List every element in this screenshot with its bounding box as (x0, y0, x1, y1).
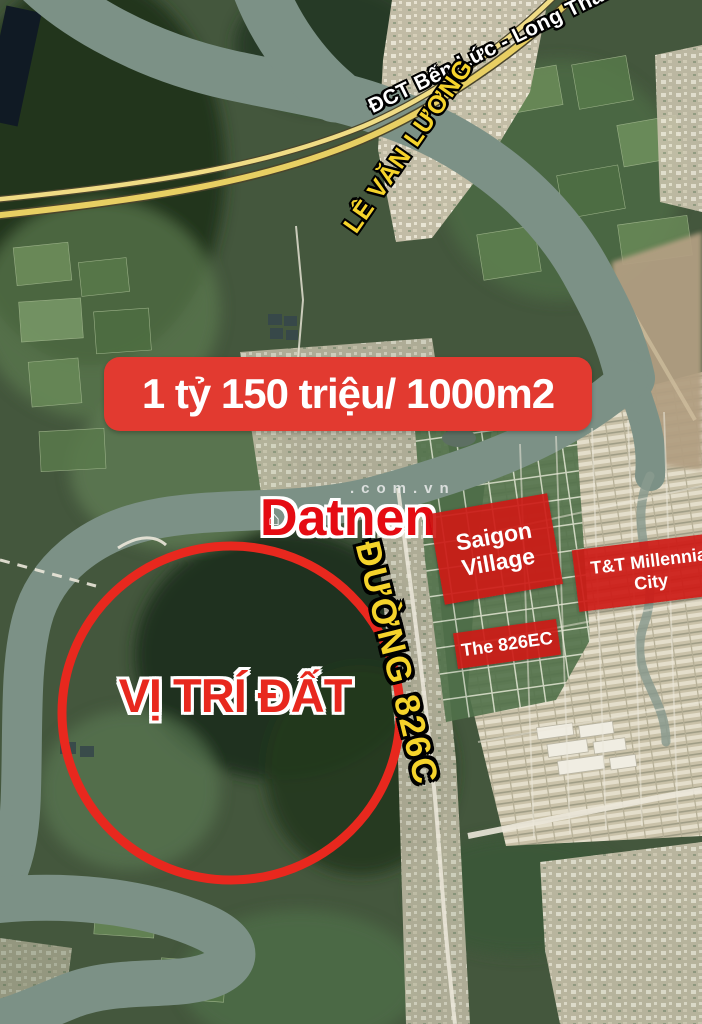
land-location-label: VỊ TRÍ ĐẤT (92, 668, 378, 723)
real-estate-map-ad: ĐCT Bến Lức - Long Thành LÊ VĂN LƯƠNG 1 … (0, 0, 702, 1024)
datnen-logo: Datnen ⌂ (260, 492, 436, 544)
house-icon: ⌂ (268, 509, 280, 529)
price-text: 1 tỷ 150 triệu/ 1000m2 (142, 370, 554, 418)
price-banner: 1 tỷ 150 triệu/ 1000m2 (104, 357, 592, 431)
logo-text: Datnen (260, 489, 436, 547)
